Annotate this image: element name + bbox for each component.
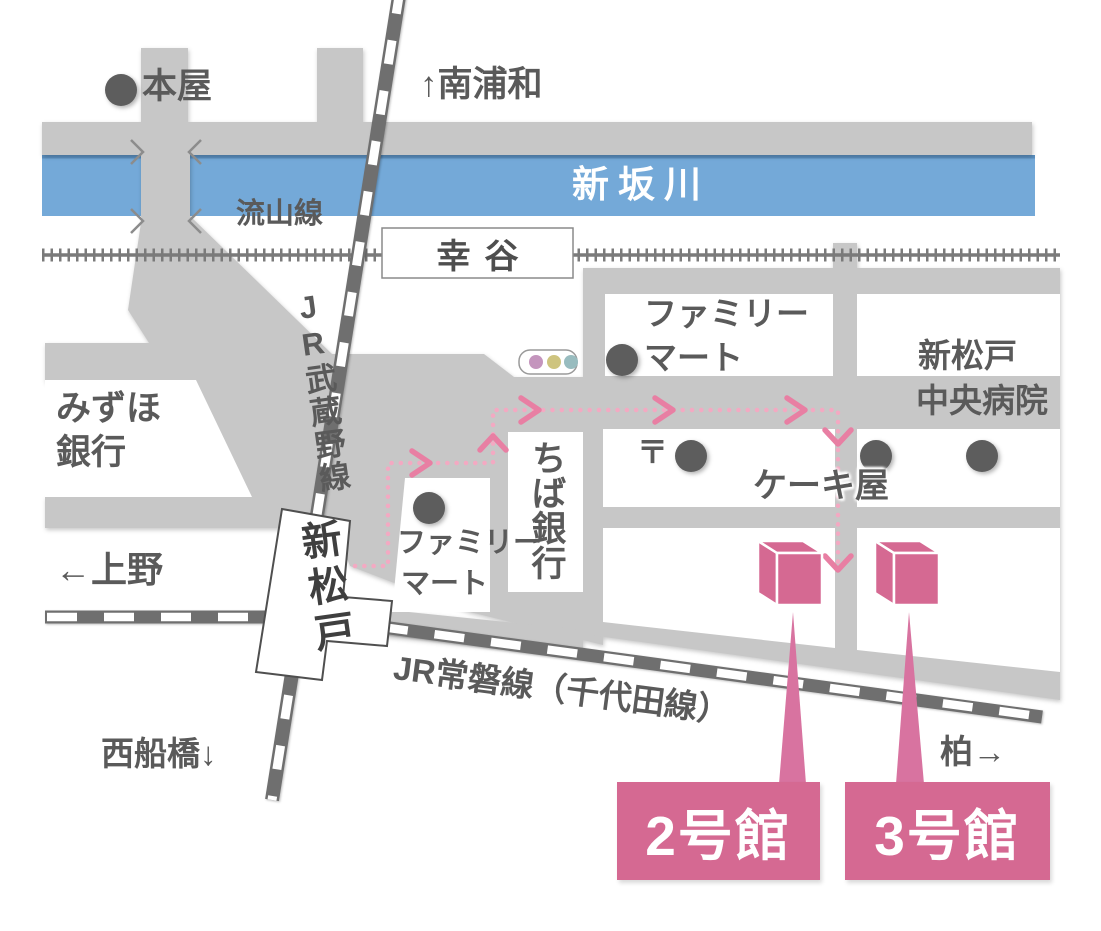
label-hospital-line1: 新松戸 xyxy=(918,338,1017,374)
label-chiba-bank: ちば銀行 xyxy=(526,440,565,600)
access-map: 本屋 ↑南浦和 新坂川 流山線 幸谷 みずほ 銀行 JR武蔵野線 ファミリー マ… xyxy=(0,0,1101,931)
traffic-light-icon xyxy=(519,350,578,374)
building-3-label-box: 3号館 xyxy=(845,782,1050,880)
post-office-icon: 〒 xyxy=(637,436,668,470)
label-direction-kashiwa: 柏→ xyxy=(940,734,1006,770)
road-stub-north xyxy=(833,243,857,271)
dot-familymart-west xyxy=(413,492,445,524)
cube-building3 xyxy=(875,541,939,605)
label-cake-shop: ケーキ屋 xyxy=(753,468,889,505)
label-familymart-west-line2: マート xyxy=(401,569,488,601)
label-mizuho-bank-line1: みずほ xyxy=(56,390,161,429)
label-mizuho-bank-line2: 銀行 xyxy=(56,434,126,473)
dot-bookstore xyxy=(105,74,137,106)
cube-building2 xyxy=(758,541,822,605)
label-familymart-north-line1: ファミリー xyxy=(644,296,809,332)
label-direction-ueno: ←上野 xyxy=(55,550,163,590)
label-direction-nishi-funabashi: 西船橋↓ xyxy=(101,736,217,772)
dot-familymart-north xyxy=(606,344,638,376)
label-direction-minami-urawa: ↑南浦和 xyxy=(420,66,543,105)
label-bookstore: 本屋 xyxy=(142,68,212,107)
dot-postoffice xyxy=(675,440,707,472)
river-shinsaka xyxy=(42,155,1035,216)
label-nagareyama-line: 流山線 xyxy=(236,199,323,231)
label-hospital-line2: 中央病院 xyxy=(916,383,1048,419)
road-vertical-mid xyxy=(317,48,363,124)
label-koya-station: 幸谷 xyxy=(382,228,573,278)
road-bridge xyxy=(141,153,190,217)
building-2-label-box: 2号館 xyxy=(617,782,820,880)
label-familymart-north-line2: マート xyxy=(644,340,743,376)
road-west-band-upper xyxy=(45,343,205,382)
label-familymart-west-line1: ファミリー xyxy=(397,528,542,560)
dot-hospital xyxy=(966,440,998,472)
label-river-shinsaka: 新坂川 xyxy=(572,165,710,206)
